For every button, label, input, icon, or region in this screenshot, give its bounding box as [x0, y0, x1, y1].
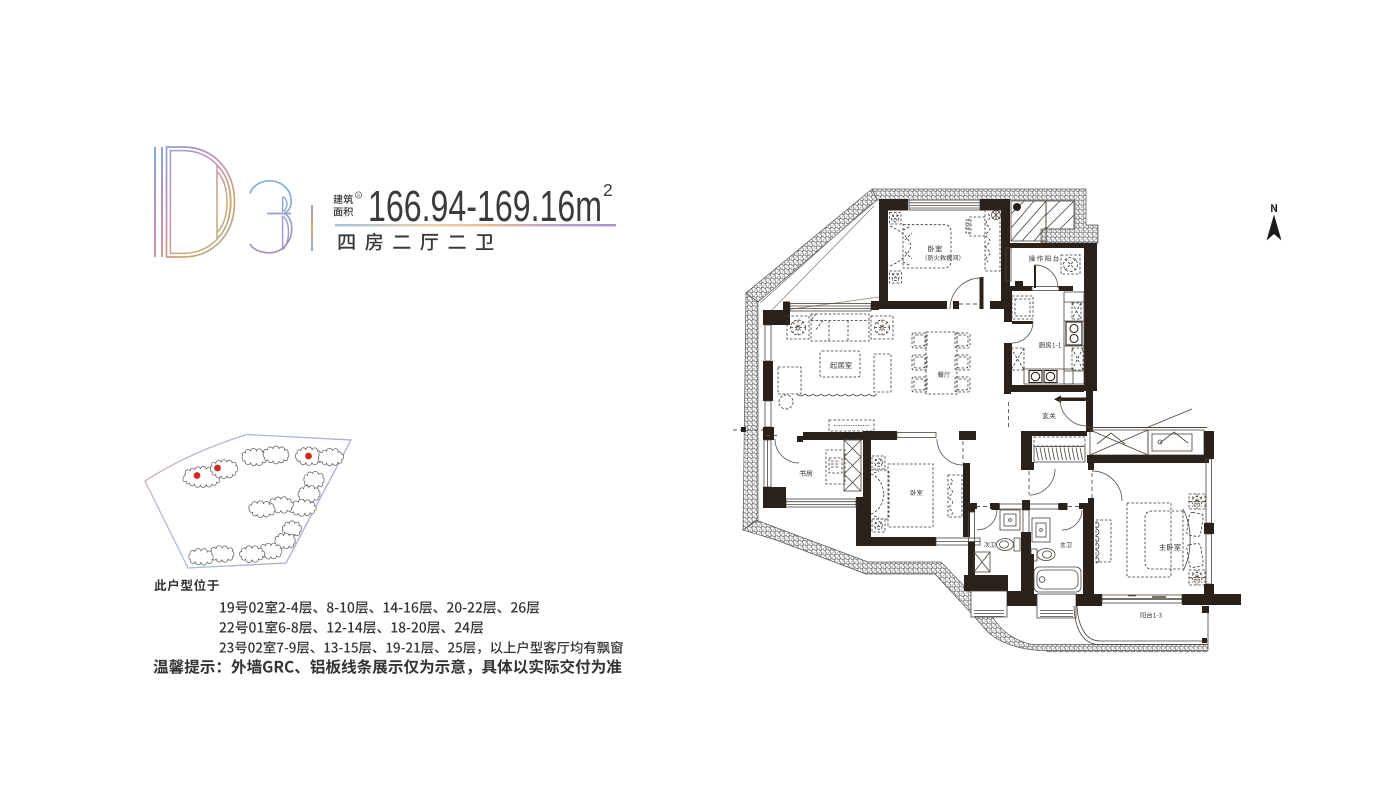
svg-text:2: 2 [603, 180, 613, 200]
svg-text:166.94-169.16m: 166.94-169.16m [368, 182, 602, 231]
